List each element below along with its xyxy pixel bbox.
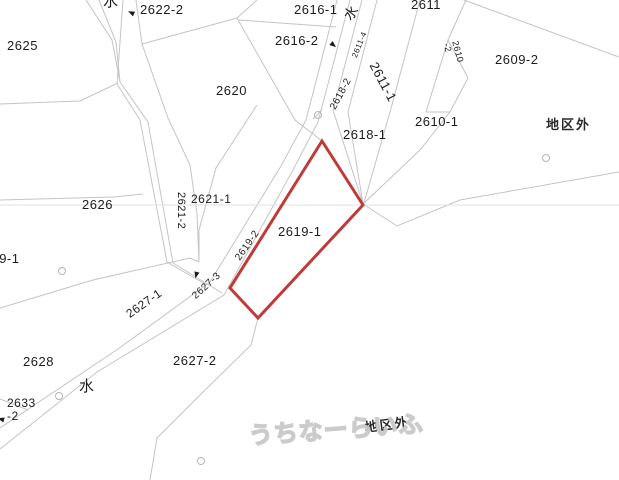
survey-point-circle xyxy=(56,393,63,400)
lot-2626-label: 2626 xyxy=(82,198,113,212)
lot-2627-2-label: 2627-2 xyxy=(173,354,216,368)
parcel-boundary-line xyxy=(117,0,123,84)
lot-2616-1-label: 2616-1 xyxy=(294,3,337,17)
parcel-boundary-line xyxy=(86,0,120,82)
lot-2629-1-label: 2629-1 xyxy=(0,252,19,266)
cadastral-map-image[interactable]: 水2622-226252616-12616-2水261126202611-426… xyxy=(0,0,619,480)
lot-2621-1-label: 2621-1 xyxy=(191,193,231,206)
pointer-arrow-icon xyxy=(329,41,337,49)
pointer-arrow-icon xyxy=(127,9,135,16)
lot-2620-label: 2620 xyxy=(216,84,247,98)
parcel-boundary-line xyxy=(99,0,120,82)
lot-2622-2-label: 2622-2 xyxy=(140,3,183,17)
survey-point-circle xyxy=(543,155,550,162)
water-top-label: 水 xyxy=(103,0,118,10)
parcel-boundary-line xyxy=(464,0,619,57)
district-east-label: 地区外 xyxy=(546,118,591,132)
parcel-boundary-line xyxy=(0,194,143,200)
lot-2618-1-label: 2618-1 xyxy=(343,128,386,142)
parcel-boundary-line xyxy=(0,258,199,308)
parcel-boundary-line xyxy=(142,18,237,44)
parcel-boundary-line xyxy=(448,0,466,40)
parcel-boundary-line xyxy=(168,118,199,262)
lot-2628-label: 2628 xyxy=(23,355,54,369)
lot-2611-label: 2611 xyxy=(411,0,441,12)
lot-2619-1-label: 2619-1 xyxy=(278,225,321,239)
parcel-boundary-line xyxy=(239,20,336,27)
survey-point-circle xyxy=(315,112,322,119)
parcel-boundary-line xyxy=(150,318,258,480)
parcel-boundary-line xyxy=(120,82,222,293)
pointer-arrow-icon xyxy=(0,416,5,423)
lot-2633-2-label: 2633-2 xyxy=(7,397,36,422)
parcel-boundary-line xyxy=(363,172,619,226)
lot-2625-label: 2625 xyxy=(7,39,38,53)
survey-point-circle xyxy=(198,458,205,465)
lot-2610-1-label: 2610-1 xyxy=(415,115,458,129)
lot-2621-2-label: 2621-2 xyxy=(174,192,186,229)
parcel-boundary-line xyxy=(117,84,205,284)
parcel-boundary-line xyxy=(364,0,420,203)
parcel-boundary-line xyxy=(0,83,118,104)
parcel-boundary-line xyxy=(136,0,168,118)
lot-2616-2-label: 2616-2 xyxy=(275,34,318,48)
survey-point-circle xyxy=(59,268,66,275)
lot-2609-2-label: 2609-2 xyxy=(495,53,538,67)
water-sw-label: 水 xyxy=(79,379,94,395)
map-geometry-layer xyxy=(0,0,619,480)
